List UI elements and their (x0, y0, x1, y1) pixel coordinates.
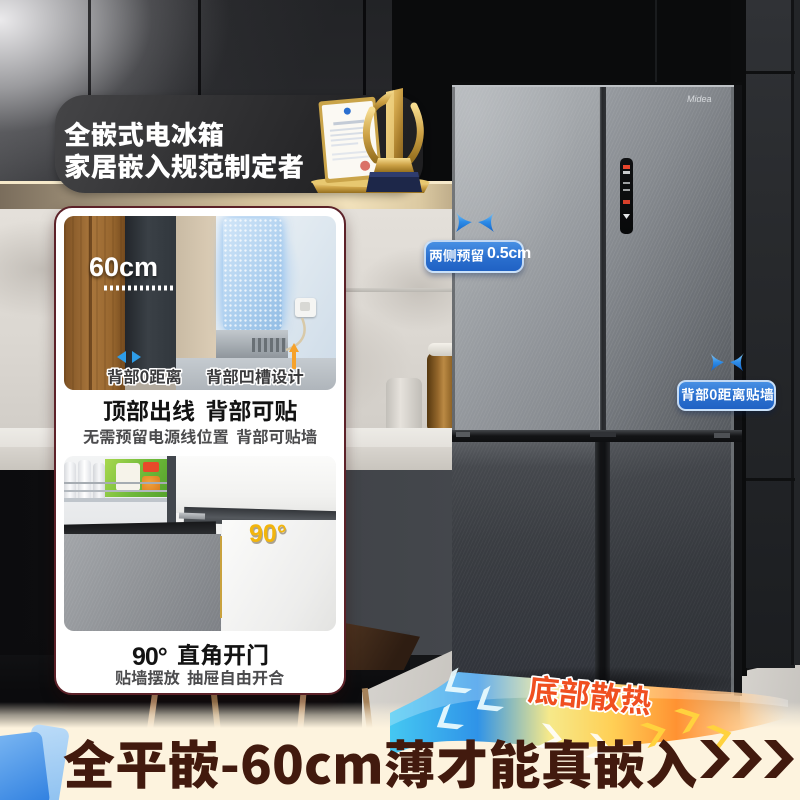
svg-text:Midea: Midea (687, 94, 712, 104)
